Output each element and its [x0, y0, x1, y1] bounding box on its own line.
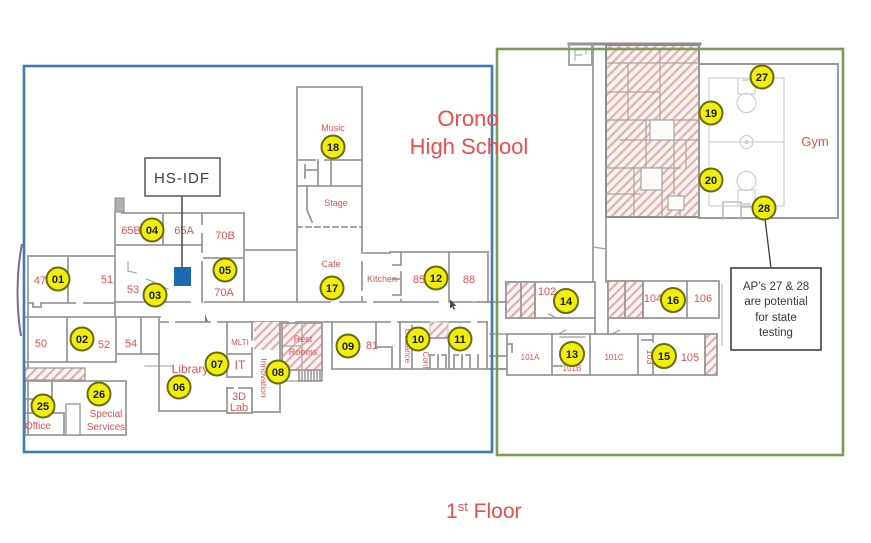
svg-text:81: 81: [366, 340, 378, 352]
svg-text:Orono: Orono: [437, 106, 498, 131]
svg-text:Office: Office: [25, 421, 51, 432]
svg-text:Rest: Rest: [294, 334, 313, 344]
svg-text:are potential: are potential: [744, 296, 807, 308]
svg-text:65A: 65A: [174, 225, 194, 237]
svg-text:Music: Music: [321, 123, 345, 133]
svg-text:Gym: Gym: [801, 134, 828, 149]
svg-text:Cafe: Cafe: [321, 259, 340, 269]
svg-text:19: 19: [705, 108, 717, 120]
svg-text:88: 88: [463, 274, 475, 286]
svg-text:14: 14: [560, 296, 573, 308]
svg-text:12: 12: [430, 273, 442, 285]
svg-text:85: 85: [413, 274, 425, 286]
svg-text:08: 08: [272, 367, 284, 379]
svg-text:Library: Library: [172, 362, 209, 376]
svg-text:70B: 70B: [215, 230, 235, 242]
svg-text:05: 05: [219, 265, 231, 277]
svg-text:11: 11: [454, 334, 466, 346]
svg-text:09: 09: [342, 341, 354, 353]
svg-text:53: 53: [127, 284, 139, 296]
svg-text:27: 27: [756, 72, 768, 84]
svg-text:15: 15: [658, 351, 670, 363]
svg-text:47: 47: [34, 275, 46, 287]
svg-text:13: 13: [566, 349, 578, 361]
svg-text:28: 28: [758, 203, 770, 215]
svg-text:MLTI: MLTI: [231, 338, 249, 347]
svg-text:1st Floor: 1st Floor: [446, 499, 522, 523]
svg-text:Stage: Stage: [324, 198, 348, 208]
svg-text:07: 07: [211, 359, 223, 371]
svg-text:54: 54: [125, 338, 137, 350]
svg-text:Lab: Lab: [230, 402, 248, 414]
svg-text:testing: testing: [759, 327, 793, 339]
svg-text:06: 06: [173, 382, 185, 394]
svg-text:20: 20: [705, 175, 717, 187]
svg-text:04: 04: [146, 225, 159, 237]
svg-text:51: 51: [101, 274, 113, 286]
svg-text:Rooms: Rooms: [289, 347, 318, 357]
svg-text:AP’s 27 & 28: AP’s 27 & 28: [743, 281, 809, 293]
svg-text:03: 03: [149, 290, 161, 302]
svg-text:104: 104: [644, 293, 662, 305]
svg-text:Kitchen: Kitchen: [367, 274, 397, 284]
svg-text:105: 105: [681, 352, 699, 364]
svg-text:01: 01: [52, 274, 64, 286]
svg-text:Special: Special: [90, 409, 123, 420]
svg-text:52: 52: [98, 339, 110, 351]
svg-text:101C: 101C: [604, 353, 623, 362]
svg-text:HS-IDF: HS-IDF: [154, 170, 210, 187]
svg-text:Conf: Conf: [421, 352, 430, 370]
svg-text:26: 26: [93, 389, 105, 401]
svg-text:102: 102: [538, 286, 556, 298]
svg-text:for state: for state: [755, 312, 797, 324]
svg-text:02: 02: [76, 334, 88, 346]
svg-text:17: 17: [326, 283, 338, 295]
svg-text:16: 16: [667, 295, 679, 307]
svg-text:10: 10: [412, 334, 424, 346]
svg-text:IT: IT: [235, 358, 246, 372]
svg-text:18: 18: [327, 142, 339, 154]
svg-text:High School: High School: [410, 134, 529, 159]
svg-text:65B: 65B: [121, 225, 141, 237]
svg-text:101A: 101A: [521, 353, 540, 362]
svg-text:25: 25: [37, 401, 49, 413]
svg-text:70A: 70A: [214, 287, 234, 299]
svg-text:Services: Services: [87, 422, 125, 433]
svg-text:106: 106: [694, 293, 712, 305]
svg-text:50: 50: [35, 338, 47, 350]
